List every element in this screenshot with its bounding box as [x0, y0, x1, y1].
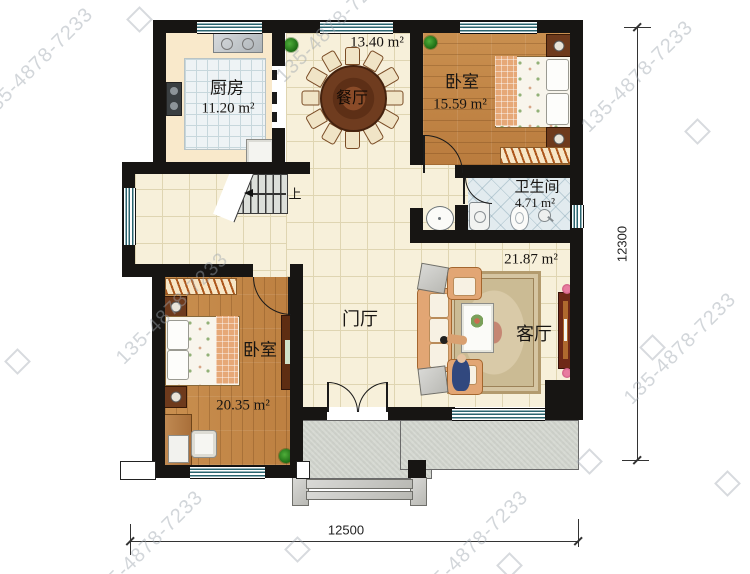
kitchen-door-mark [272, 92, 277, 104]
watermark-diamond-icon [714, 470, 741, 497]
stairs-arrow-line [252, 193, 286, 195]
pilaster [120, 461, 156, 480]
dim-ext-right [578, 519, 579, 547]
washing-machine [469, 202, 490, 231]
label-bedroom-bottom-area: 20.35 m² [216, 398, 270, 415]
sofa-cushion [429, 293, 449, 318]
window-living [452, 408, 545, 421]
dim-text-right: 12300 [615, 226, 630, 262]
bed-bottom-pillow [167, 350, 189, 380]
label-bathroom: 卫生间 [514, 176, 559, 197]
kitchen-sink [213, 33, 263, 53]
right-terrace [400, 420, 579, 470]
wall-bedroom2-left [152, 264, 165, 478]
nightstand-knob [554, 133, 565, 144]
label-bedroom-top-area: 15.59 m² [433, 97, 487, 114]
radiator-top-bedroom [500, 147, 572, 164]
desk [164, 414, 192, 466]
watermark-diamond-icon [496, 552, 523, 574]
door-leaf-bedroom-bottom [288, 277, 290, 315]
wall-entry-left [303, 407, 327, 420]
watermark-diamond-icon [684, 118, 711, 145]
step-rail-top [306, 479, 413, 489]
wall-bedroom1-left [410, 20, 423, 165]
window-bedroom-top [460, 21, 537, 34]
label-kitchen-area: 11.20 m² [201, 101, 254, 118]
nightstand [164, 296, 187, 318]
desk-monitor [168, 435, 189, 463]
bed-top-pillow [546, 93, 569, 125]
label-hall: 门厅 [342, 305, 378, 331]
washer-door [474, 211, 486, 223]
label-hall-area: 21.87 m² [504, 252, 558, 269]
tv-screen [564, 319, 567, 341]
label-dining: 餐厅 [336, 84, 368, 108]
dim-line-bottom [130, 541, 578, 542]
nightstand-knob [170, 392, 181, 403]
basin-drain [438, 217, 441, 220]
stairs-arrow-head [244, 189, 253, 197]
wall-entry-right [388, 407, 455, 420]
label-bedroom-bottom: 卧室 [243, 336, 277, 361]
dim-line-right [637, 27, 638, 460]
toilet-bowl [515, 212, 524, 224]
label-bathroom-area: 4.71 m² [515, 195, 555, 211]
desk-chair [191, 430, 217, 458]
nightstand-knob [554, 40, 565, 51]
label-stairs-up: 上 [288, 184, 301, 203]
step-rail-bottom [306, 491, 413, 500]
watermark-diamond-icon [639, 334, 666, 361]
plant-icon [284, 38, 298, 52]
window-bedroom-bottom [190, 466, 265, 479]
watermark-text: 135-4878-7233 [0, 3, 98, 124]
entry-door-right-leaf [386, 382, 388, 412]
entry-steps [292, 477, 425, 504]
watermark-diamond-icon [126, 6, 153, 33]
sofa-cushion [429, 343, 449, 368]
wall-bedroom2-top [165, 264, 253, 277]
dining-chair [386, 90, 404, 105]
bed-top-blanket [495, 56, 517, 126]
watermark-diamond-icon [576, 448, 603, 475]
door-leaf-bathroom [463, 177, 465, 204]
watermark-text: 135-4878-7233 [412, 486, 533, 574]
watermark-text: 135-4878-7233 [87, 486, 208, 574]
label-dining-area: 13.40 m² [350, 35, 404, 52]
window-dining [320, 21, 393, 34]
window-bathroom [571, 205, 584, 228]
nightstand-knob [170, 302, 181, 313]
nightstand [546, 34, 572, 57]
sink-basin [221, 38, 233, 50]
watermark-diamond-icon [4, 348, 31, 375]
armchair-cushion [453, 277, 476, 296]
label-kitchen: 厨房 [210, 74, 244, 99]
bed-bottom-pillow [167, 320, 189, 350]
wall-bathroom-bottom [410, 230, 583, 243]
watermark-text: 135-4878-7233 [620, 288, 741, 409]
wall-bedroom2-right [290, 264, 303, 478]
armchair-top [447, 267, 482, 300]
person-standing-head [457, 354, 466, 363]
kitchen-door-mark [272, 112, 277, 122]
wall-kitchen-left [153, 20, 166, 174]
label-bedroom-top: 卧室 [445, 68, 479, 93]
side-table-bottom [417, 365, 448, 395]
wardrobe-hatch [165, 278, 237, 295]
porch-column [408, 460, 426, 478]
stove-burner [170, 102, 178, 110]
door-leaf-bedroom-top [423, 135, 425, 173]
bed-bottom-blanket [216, 316, 238, 384]
sofa [417, 288, 452, 372]
nightstand [164, 386, 187, 408]
pilaster [296, 461, 310, 479]
coffee-table [461, 303, 494, 353]
kitchen-stove [166, 82, 182, 116]
label-living: 客厅 [516, 320, 552, 346]
stove-burner [170, 87, 178, 95]
dining-chair [302, 90, 320, 105]
entry-door-left-leaf [327, 382, 329, 412]
wall-kitchen-right-lower [272, 128, 285, 174]
dining-chair [345, 131, 360, 149]
washbasin [426, 206, 454, 231]
floor-plan: 厨房 11.20 m² 13.40 m² 餐厅 卧室 15.59 m² 卫生间 … [0, 0, 750, 574]
table-decor [471, 314, 483, 328]
window-kitchen [197, 21, 262, 34]
side-table-top [417, 263, 449, 294]
window-hall [123, 188, 136, 245]
dim-text-bottom: 12500 [328, 523, 364, 538]
wall-kitchen-right-upper [272, 20, 285, 66]
bed-top-pillow [546, 59, 569, 91]
kitchen-door-mark [272, 70, 277, 80]
plant-icon [424, 36, 437, 49]
sink-basin [242, 38, 254, 50]
